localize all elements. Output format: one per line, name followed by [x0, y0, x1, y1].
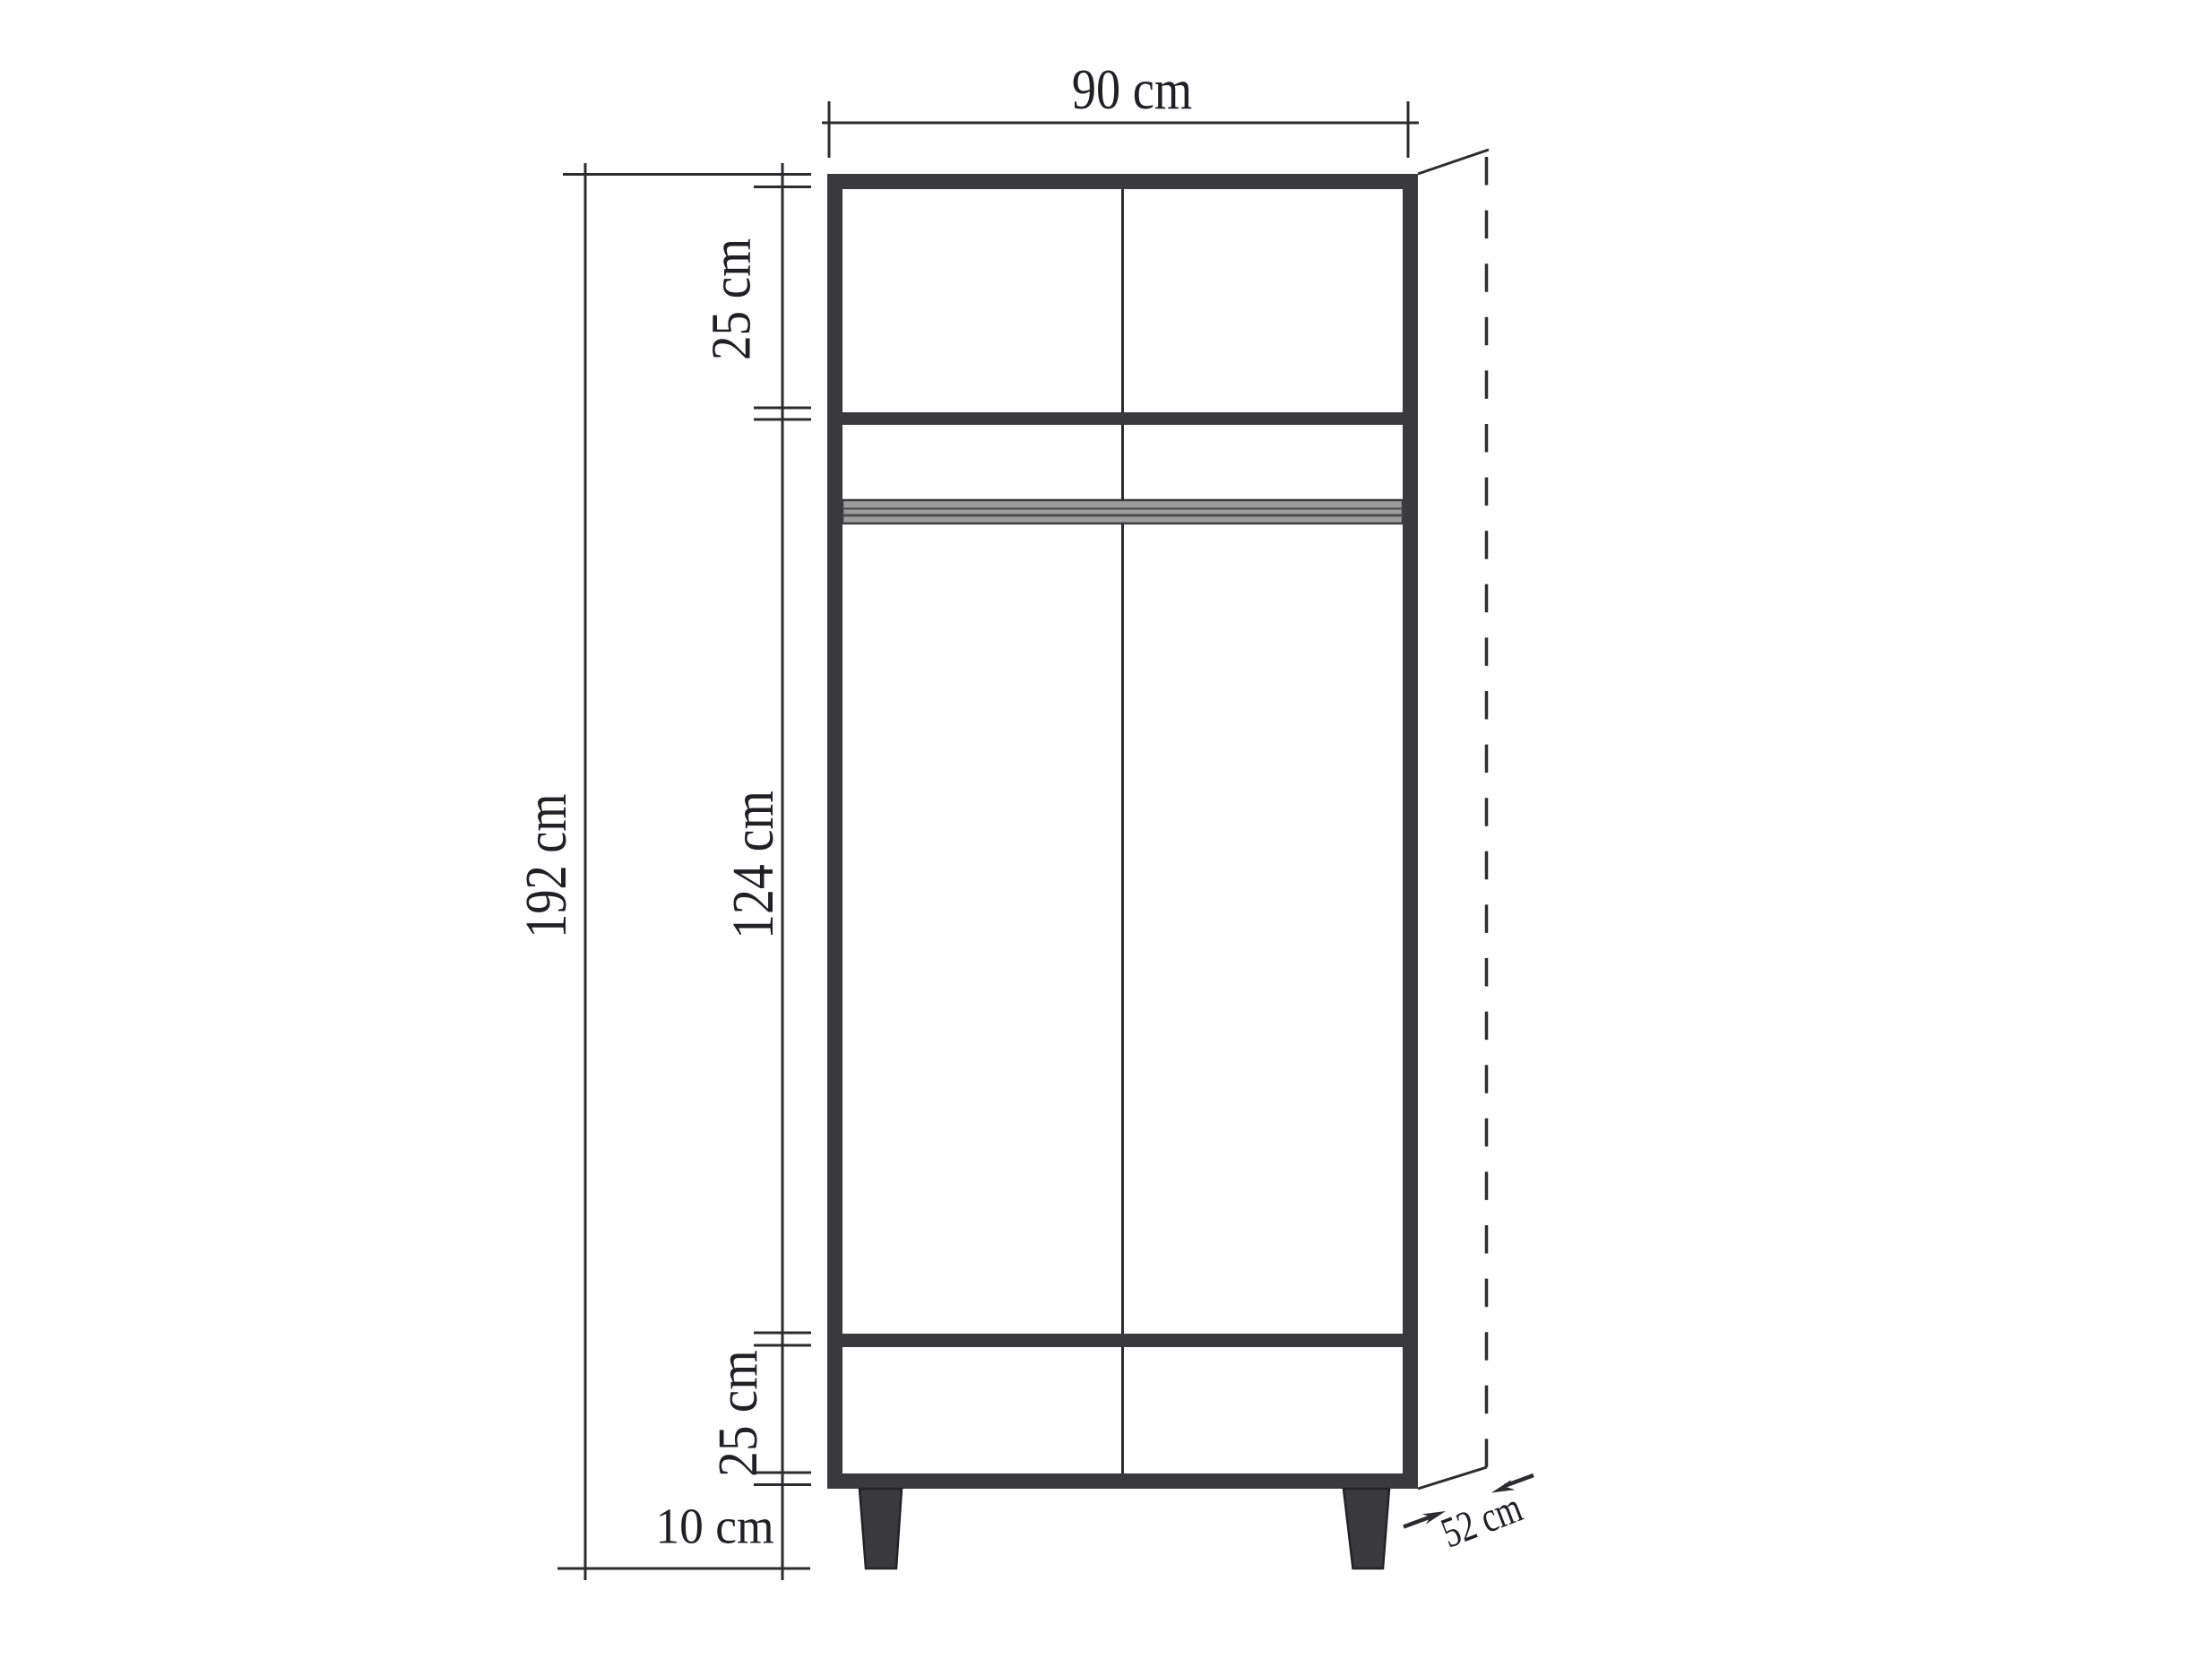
- svg-text:192 cm: 192 cm: [514, 793, 579, 938]
- svg-text:10 cm: 10 cm: [655, 1498, 773, 1553]
- svg-text:90 cm: 90 cm: [1072, 58, 1192, 121]
- svg-text:25 cm: 25 cm: [706, 1350, 769, 1477]
- svg-text:124 cm: 124 cm: [721, 791, 786, 939]
- svg-text:25 cm: 25 cm: [701, 238, 763, 360]
